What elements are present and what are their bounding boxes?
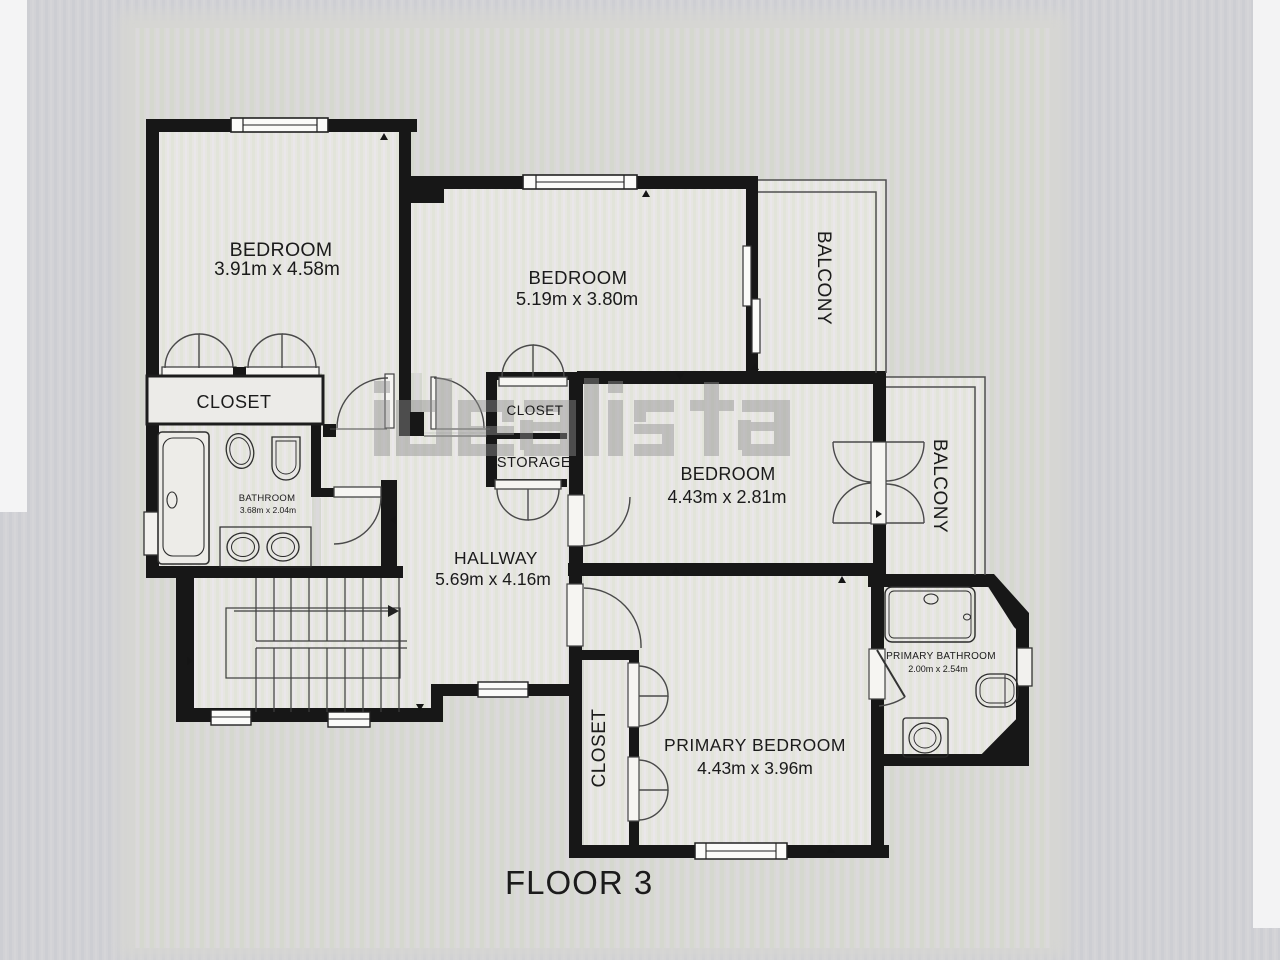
svg-text:5.69m x 4.16m: 5.69m x 4.16m: [435, 569, 551, 589]
svg-text:CLOSET: CLOSET: [506, 403, 563, 418]
svg-text:4.43m x 2.81m: 4.43m x 2.81m: [667, 487, 786, 507]
svg-text:CLOSET: CLOSET: [196, 392, 271, 412]
svg-text:FLOOR 3: FLOOR 3: [505, 864, 653, 901]
svg-text:2.00m x 2.54m: 2.00m x 2.54m: [908, 664, 968, 674]
svg-text:STORAGE: STORAGE: [497, 455, 571, 471]
svg-text:BEDROOM: BEDROOM: [230, 239, 333, 261]
svg-text:PRIMARY BEDROOM: PRIMARY BEDROOM: [664, 735, 846, 755]
svg-text:BALCONY: BALCONY: [813, 231, 834, 325]
svg-text:BEDROOM: BEDROOM: [680, 464, 775, 484]
svg-text:BALCONY: BALCONY: [929, 439, 950, 533]
svg-text:4.43m x 3.96m: 4.43m x 3.96m: [697, 758, 813, 778]
svg-text:CLOSET: CLOSET: [589, 708, 610, 787]
svg-text:3.91m x 4.58m: 3.91m x 4.58m: [214, 259, 340, 280]
svg-text:HALLWAY: HALLWAY: [454, 548, 538, 568]
svg-text:BATHROOM: BATHROOM: [239, 493, 296, 504]
svg-text:5.19m x 3.80m: 5.19m x 3.80m: [516, 288, 638, 309]
svg-text:PRIMARY BATHROOM: PRIMARY BATHROOM: [886, 651, 996, 662]
svg-text:BEDROOM: BEDROOM: [528, 267, 627, 288]
svg-text:3.68m x 2.04m: 3.68m x 2.04m: [240, 505, 296, 515]
